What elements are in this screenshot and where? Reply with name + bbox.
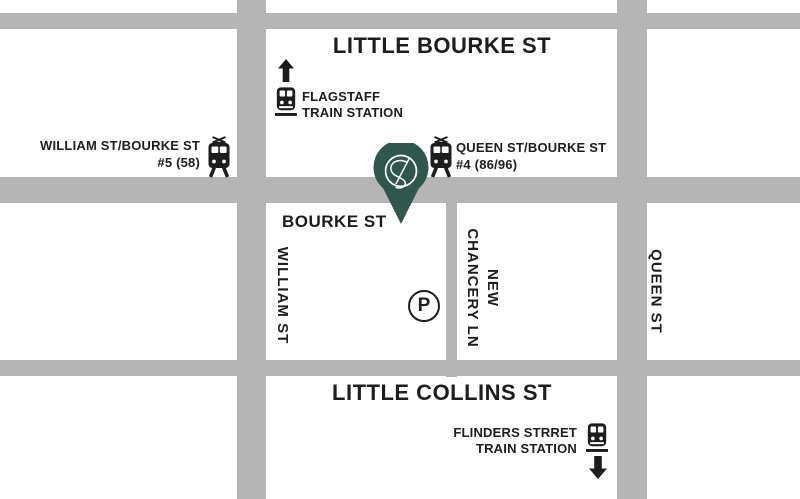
- parking-label: P: [418, 295, 431, 317]
- street-label-william: WILLIAM ST: [274, 238, 291, 353]
- flinders-station-label: FLINDERS STRRET TRAIN STATION: [377, 425, 577, 456]
- train-icon: [275, 87, 297, 117]
- street-label-bourke: BOURKE ST: [282, 212, 387, 232]
- flinders-station-line1: FLINDERS STRRET: [377, 425, 577, 441]
- street-band-queen: [617, 0, 647, 499]
- parking-icon: P: [408, 290, 440, 322]
- flinders-station-line2: TRAIN STATION: [377, 441, 577, 457]
- tram-icon: [206, 136, 232, 178]
- flagstaff-station-line1: FLAGSTAFF: [302, 89, 403, 105]
- flagstaff-station-line2: TRAIN STATION: [302, 105, 403, 121]
- arrow-down-icon: [589, 456, 607, 479]
- street-label-queen: QUEEN ST: [648, 242, 665, 342]
- street-band-william: [237, 0, 266, 499]
- tram-stop-queen-bourke-routes: #4 (86/96): [456, 156, 606, 173]
- street-band-top: [0, 13, 800, 29]
- street-label-chancery-line1: NEW: [482, 213, 502, 363]
- tram-stop-william-bourke-label: WILLIAM ST/BOURKE ST #5 (58): [18, 137, 200, 171]
- arrow-up-icon: [278, 59, 294, 82]
- tram-stop-william-bourke-name: WILLIAM ST/BOURKE ST: [18, 137, 200, 154]
- street-label-chancery-line2: CHANCERY LN: [462, 213, 482, 363]
- tram-stop-william-bourke-routes: #5 (58): [18, 154, 200, 171]
- street-label-little-bourke: LITTLE BOURKE ST: [267, 33, 617, 59]
- flagstaff-station-label: FLAGSTAFF TRAIN STATION: [302, 89, 403, 120]
- tram-stop-queen-bourke-label: QUEEN ST/BOURKE ST #4 (86/96): [456, 139, 606, 173]
- transit-map: LITTLE BOURKE ST FLAGSTAFF TRAIN STATION…: [0, 0, 800, 499]
- tram-stop-queen-bourke-name: QUEEN ST/BOURKE ST: [456, 139, 606, 156]
- street-label-chancery: NEW CHANCERY LN: [462, 213, 502, 363]
- train-icon: [586, 423, 608, 453]
- street-band-little-collins: [0, 360, 800, 376]
- street-band-chancery-lane: [446, 177, 457, 377]
- street-label-little-collins: LITTLE COLLINS ST: [267, 380, 617, 406]
- tram-icon: [428, 136, 454, 178]
